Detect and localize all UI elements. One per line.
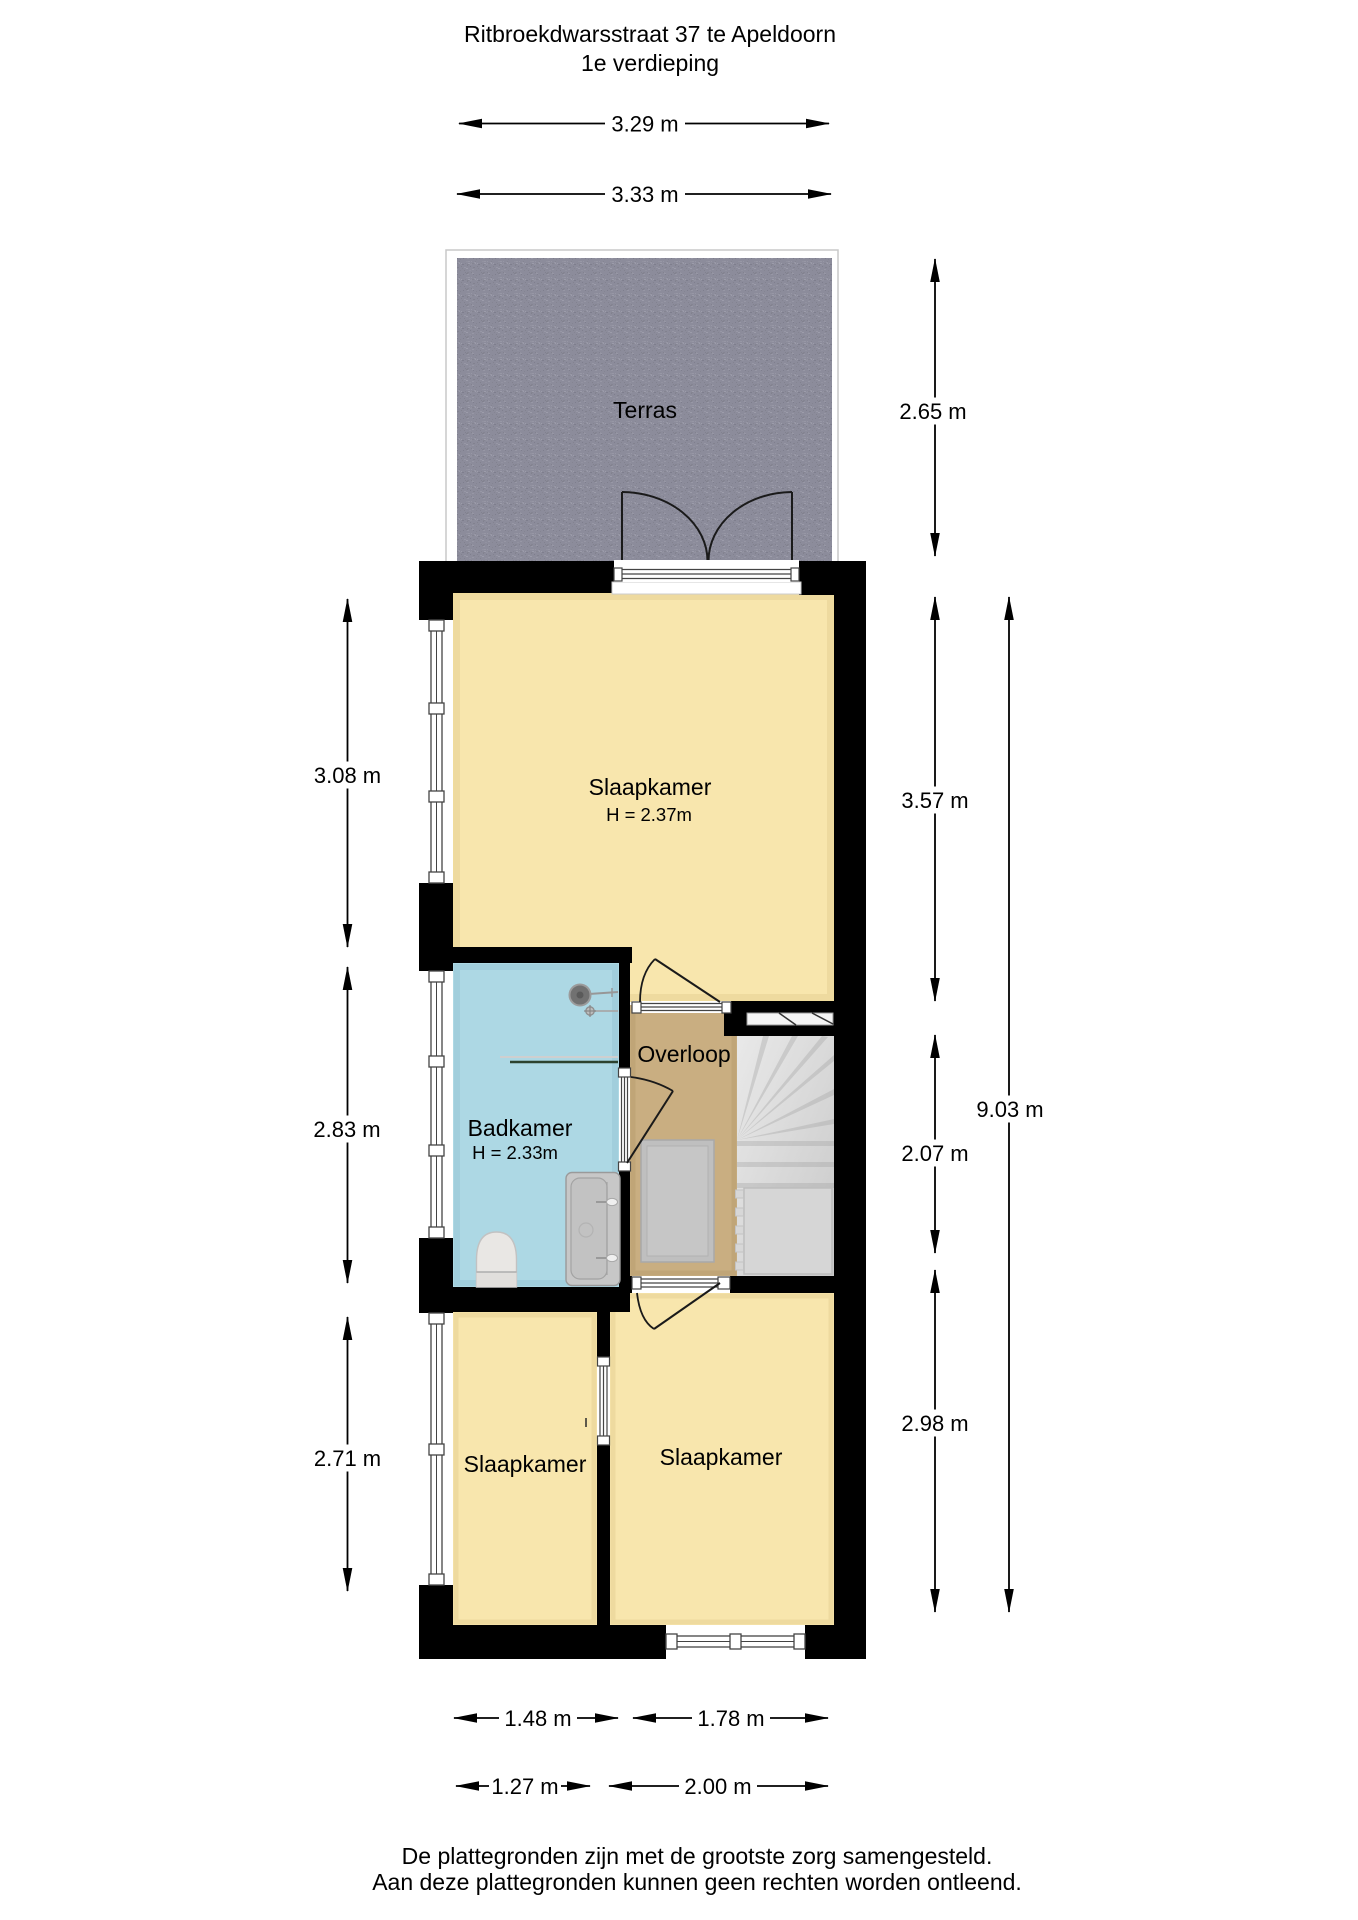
svg-text:De plattegronden zijn met de g: De plattegronden zijn met de grootste zo… [402, 1843, 993, 1869]
svg-text:2.71 m: 2.71 m [314, 1446, 381, 1471]
svg-text:1.48 m: 1.48 m [504, 1706, 571, 1731]
svg-text:1.78 m: 1.78 m [697, 1706, 764, 1731]
svg-text:2.98 m: 2.98 m [901, 1411, 968, 1436]
svg-text:2.00 m: 2.00 m [684, 1774, 751, 1799]
svg-text:3.57 m: 3.57 m [901, 788, 968, 813]
svg-text:1e verdieping: 1e verdieping [581, 50, 719, 76]
svg-text:Terras: Terras [613, 397, 677, 423]
svg-text:H = 2.33m: H = 2.33m [472, 1142, 558, 1163]
svg-text:Overloop: Overloop [637, 1041, 730, 1067]
svg-text:3.08 m: 3.08 m [314, 763, 381, 788]
svg-text:Slaapkamer: Slaapkamer [660, 1444, 783, 1470]
svg-text:Slaapkamer: Slaapkamer [464, 1451, 587, 1477]
svg-text:2.65 m: 2.65 m [899, 399, 966, 424]
svg-text:2.83 m: 2.83 m [313, 1117, 380, 1142]
svg-text:9.03 m: 9.03 m [976, 1097, 1043, 1122]
svg-text:Badkamer: Badkamer [468, 1115, 573, 1141]
svg-text:Slaapkamer: Slaapkamer [589, 774, 712, 800]
svg-text:Ritbroekdwarsstraat 37 te Apel: Ritbroekdwarsstraat 37 te Apeldoorn [464, 21, 836, 47]
svg-text:Aan deze plattegronden kunnen: Aan deze plattegronden kunnen geen recht… [372, 1869, 1022, 1895]
svg-text:3.33 m: 3.33 m [611, 182, 678, 207]
svg-text:1.27 m: 1.27 m [491, 1774, 558, 1799]
svg-text:2.07 m: 2.07 m [901, 1141, 968, 1166]
svg-text:H = 2.37m: H = 2.37m [606, 804, 692, 825]
svg-text:3.29 m: 3.29 m [611, 112, 678, 137]
